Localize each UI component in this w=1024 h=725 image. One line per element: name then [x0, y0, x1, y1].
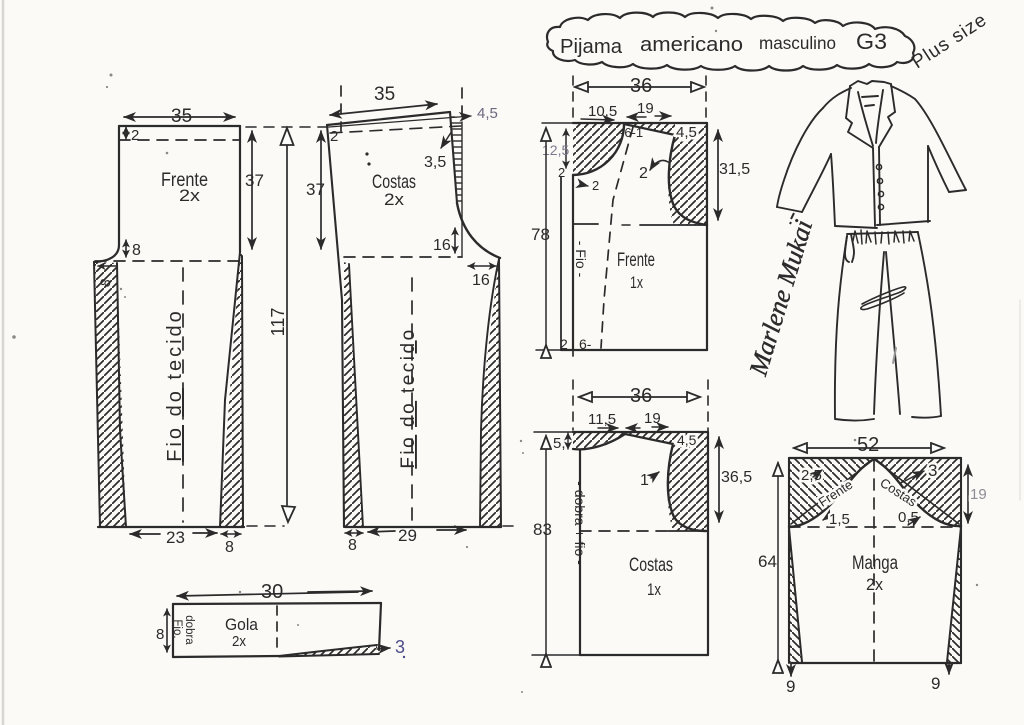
svg-text:6-: 6-: [579, 336, 592, 352]
svg-text:19: 19: [637, 100, 654, 117]
svg-text:36,5: 36,5: [721, 469, 752, 486]
svg-text:Gola: Gola: [225, 615, 258, 634]
svg-text:dobra: dobra: [183, 615, 195, 645]
svg-text:11,5: 11,5: [588, 411, 616, 428]
svg-text:10,5: 10,5: [588, 103, 617, 120]
svg-text:16: 16: [433, 237, 451, 254]
svg-text:Fio do tecido: Fio do tecido: [164, 308, 186, 462]
svg-text:2: 2: [558, 165, 565, 180]
svg-text:Manga: Manga: [852, 553, 898, 574]
svg-text:3: 3: [395, 637, 405, 657]
svg-text:2x: 2x: [179, 186, 201, 205]
svg-text:2x: 2x: [384, 190, 405, 209]
svg-text:2: 2: [639, 165, 648, 182]
svg-text:36: 36: [630, 385, 652, 407]
svg-text:americano: americano: [640, 34, 743, 56]
svg-text:1: 1: [640, 472, 649, 489]
svg-text:37: 37: [306, 180, 325, 199]
svg-text:117: 117: [268, 308, 288, 337]
svg-text:2x: 2x: [866, 575, 883, 594]
svg-text:8: 8: [225, 539, 234, 556]
svg-text:Costas: Costas: [629, 555, 673, 576]
svg-text:Fio.: Fio.: [171, 619, 183, 638]
svg-text:16: 16: [472, 272, 490, 289]
svg-text:19: 19: [644, 410, 661, 427]
svg-text:8: 8: [348, 537, 357, 554]
svg-text:35: 35: [171, 106, 192, 127]
svg-text:masculino: masculino: [759, 33, 836, 53]
svg-text:78: 78: [531, 225, 550, 244]
svg-text:Frente: Frente: [617, 250, 655, 271]
svg-text:37: 37: [245, 171, 264, 190]
svg-text:83: 83: [533, 520, 552, 539]
svg-text:4,5: 4,5: [677, 432, 697, 448]
svg-text:1x: 1x: [647, 580, 661, 599]
svg-text:30: 30: [261, 581, 283, 603]
svg-text:2: 2: [330, 128, 338, 145]
svg-text:5,: 5,: [553, 435, 566, 452]
svg-text:36: 36: [630, 75, 652, 97]
svg-text:19: 19: [970, 486, 987, 503]
svg-text:4,5: 4,5: [676, 124, 697, 141]
svg-text:- dobra + fio -: - dobra + fio -: [572, 481, 588, 565]
svg-text:8: 8: [156, 626, 164, 643]
svg-text:35: 35: [374, 84, 395, 105]
svg-text:2: 2: [592, 178, 599, 193]
svg-text:2: 2: [131, 127, 139, 144]
svg-text:52: 52: [857, 434, 879, 456]
svg-text:8: 8: [132, 242, 141, 259]
svg-text:23: 23: [166, 528, 185, 547]
svg-text:-6-1: -6-1: [620, 125, 643, 140]
svg-text:31,5: 31,5: [719, 161, 750, 178]
svg-text:4,5: 4,5: [477, 105, 498, 122]
svg-text:0,5: 0,5: [898, 509, 919, 526]
svg-text:2,5: 2,5: [801, 467, 822, 484]
svg-text:- Fio -: - Fio -: [573, 241, 589, 278]
svg-text:1x: 1x: [630, 273, 643, 292]
svg-text:9: 9: [931, 674, 940, 693]
svg-text:64: 64: [758, 552, 777, 571]
svg-text:Fio do tecido: Fio do tecido: [398, 327, 419, 468]
svg-text:29: 29: [398, 526, 417, 545]
svg-text:3,5: 3,5: [424, 154, 446, 171]
svg-text:2x: 2x: [232, 633, 246, 650]
svg-text:G3: G3: [856, 29, 887, 54]
svg-text:9: 9: [786, 677, 795, 696]
svg-text:3: 3: [928, 461, 937, 480]
svg-text:Pijama: Pijama: [560, 36, 623, 58]
svg-text:2: 2: [560, 336, 568, 352]
svg-text:1,5: 1,5: [829, 511, 850, 528]
